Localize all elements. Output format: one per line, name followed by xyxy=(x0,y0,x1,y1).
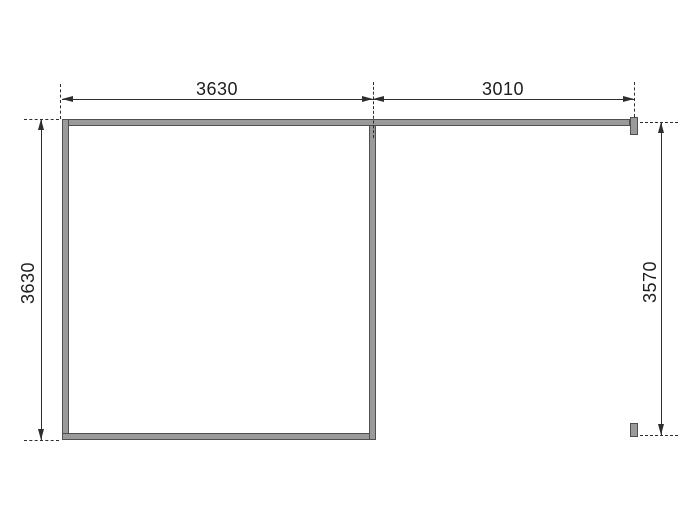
dimension-label-top-left: 3630 xyxy=(167,79,267,99)
dimension-line-right xyxy=(661,122,662,435)
arrowhead-top-middle-left xyxy=(362,96,373,102)
floor-plan-diagram: 3630 3010 3630 3570 xyxy=(0,0,700,525)
extension-line-top-right xyxy=(634,82,635,117)
dimension-label-right: 3570 xyxy=(640,232,660,332)
dimension-line-top xyxy=(62,99,634,100)
arrowhead-left-bottom xyxy=(38,429,44,440)
dimension-label-left: 3630 xyxy=(18,233,38,333)
arrowhead-top-right-outer xyxy=(623,96,634,102)
extension-line-left-lower xyxy=(24,440,59,441)
dimension-line-left xyxy=(41,119,42,440)
wall-middle xyxy=(369,125,376,440)
arrowhead-right-bottom xyxy=(658,424,664,435)
arrowhead-top-middle-right xyxy=(373,96,384,102)
post-bottom-right xyxy=(630,423,638,437)
arrowhead-top-left-outer xyxy=(62,96,73,102)
arrowhead-left-top xyxy=(38,119,44,130)
extension-line-right-lower xyxy=(640,435,678,436)
wall-top-beam xyxy=(62,119,630,126)
wall-left xyxy=(62,119,69,440)
extension-line-top-middle xyxy=(373,82,374,138)
dimension-label-top-right: 3010 xyxy=(453,79,553,99)
wall-bottom xyxy=(62,433,376,440)
extension-line-top-left xyxy=(60,84,61,119)
post-top-right xyxy=(630,117,638,135)
arrowhead-right-top xyxy=(658,122,664,133)
